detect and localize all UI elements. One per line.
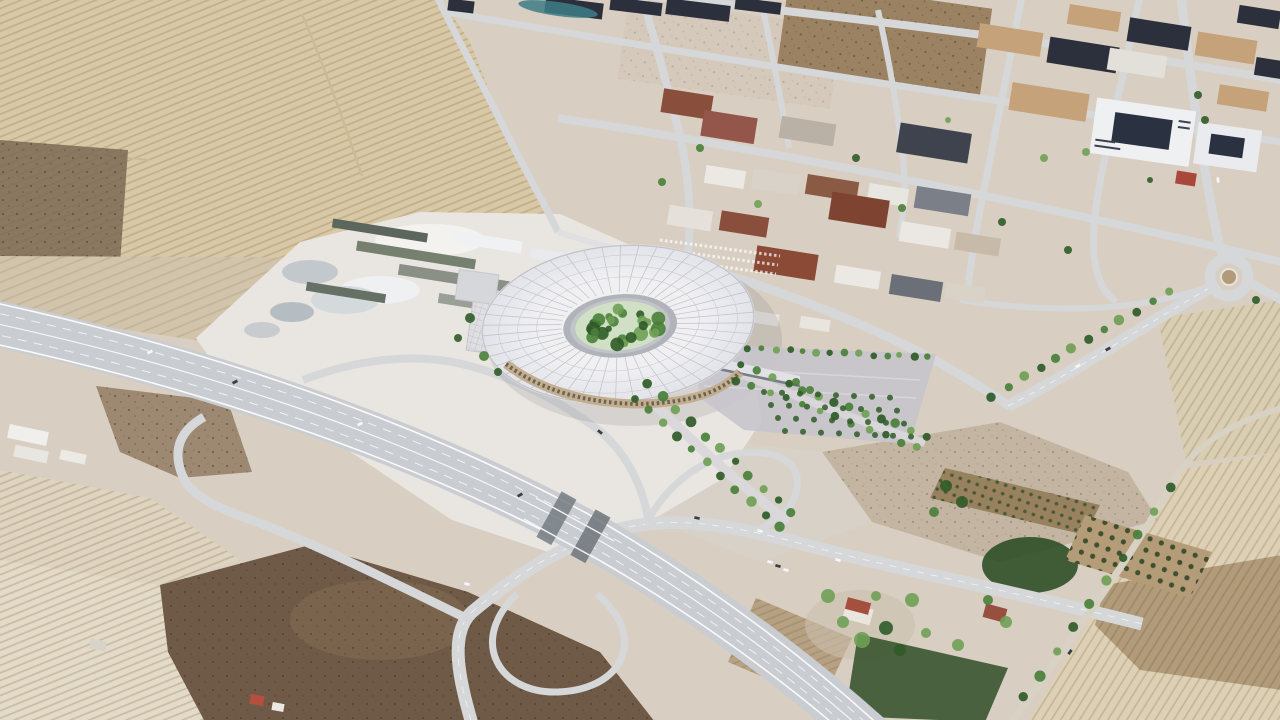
gravel-pile [270, 302, 314, 322]
gravel-pile [244, 322, 280, 338]
gravel-pile [282, 260, 338, 284]
roundabout-island [1221, 269, 1237, 285]
aerial-scene [0, 0, 1280, 720]
